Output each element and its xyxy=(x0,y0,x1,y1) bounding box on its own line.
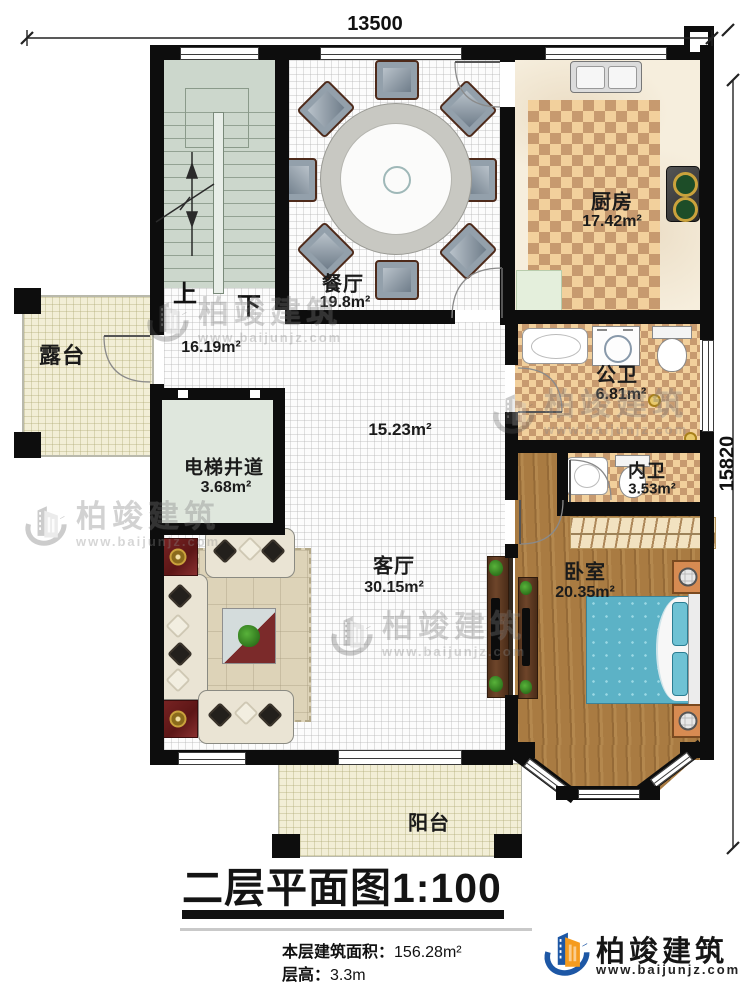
wardrobe xyxy=(570,517,716,549)
label-living-area: 30.15m² xyxy=(364,579,424,597)
label-terrace-name: 露台 xyxy=(39,338,85,370)
bay-wall-bottom xyxy=(556,786,660,800)
dimension-right: 15820 xyxy=(717,435,740,493)
end-table xyxy=(158,700,198,738)
plant xyxy=(489,676,503,692)
plant xyxy=(520,581,532,595)
label-elevator-area: 3.68m² xyxy=(201,479,252,497)
kitchen-stove xyxy=(666,166,700,222)
window-public-bath xyxy=(702,340,714,432)
floor-area-value: 156.28m² xyxy=(394,944,462,961)
brand-website: www.baijunjz.com xyxy=(596,962,740,977)
label-hall-area: 15.23m² xyxy=(368,420,431,440)
floor-height-value: 3.3m xyxy=(330,967,366,984)
sofa-bottom xyxy=(198,690,294,744)
wall-right-lower xyxy=(700,430,714,760)
pillow xyxy=(672,602,688,646)
window-living xyxy=(178,752,246,765)
label-elevator-name: 电梯井道 xyxy=(184,453,264,480)
label-balcony-name: 阳台 xyxy=(408,807,450,836)
wall-cabinet-line xyxy=(509,558,513,695)
dining-table-center xyxy=(383,166,411,194)
wall-hall-bath-b xyxy=(505,412,518,500)
wall-balcony-top-right xyxy=(458,750,513,765)
label-living-name: 客厅 xyxy=(373,550,415,579)
tv-living xyxy=(491,598,500,660)
terrace-floor xyxy=(22,295,154,457)
bath-sink xyxy=(522,328,588,364)
floor-plan-canvas: 13500 15820 餐厅 19.8m² 厨房 17.42m² 露台 上 下 … xyxy=(0,0,750,994)
window-stairwell xyxy=(180,47,259,60)
coffee-table xyxy=(222,608,276,664)
floor-height-row: 层高：3.3m xyxy=(282,961,366,985)
label-stairs-up: 上 xyxy=(173,274,197,309)
wall-hall-top-left xyxy=(285,310,455,324)
label-bedroom-area: 20.35m² xyxy=(555,584,615,602)
floor-area-row: 本层建筑面积：156.28m² xyxy=(282,938,462,962)
elevator-wall-top xyxy=(150,388,285,400)
elevator-door-mark xyxy=(178,390,188,398)
plant xyxy=(520,680,532,694)
label-ensuite-name: 内卫 xyxy=(628,457,666,483)
floor-height-label: 层高： xyxy=(282,967,330,984)
wall-ensuite-left xyxy=(557,453,568,502)
ensuite-sink xyxy=(566,457,608,495)
tv-bedroom xyxy=(522,608,530,666)
wall-stair-dining xyxy=(275,45,289,310)
kitchen-sink xyxy=(570,61,642,93)
balcony-sliding-door xyxy=(338,750,462,765)
elevator-wall-left xyxy=(150,388,162,535)
label-public-bath-area: 6.81m² xyxy=(596,386,647,404)
window-kitchen xyxy=(545,47,667,60)
elevator-door-mark xyxy=(250,390,260,398)
floor-area-label: 本层建筑面积： xyxy=(282,944,394,961)
window-dining xyxy=(320,47,462,60)
label-kitchen-name: 厨房 xyxy=(591,186,633,215)
wall-dining-kitchen-a xyxy=(500,45,515,62)
wall-right-upper xyxy=(700,45,714,340)
wall-bath-divider xyxy=(515,440,714,453)
sofa-top xyxy=(205,528,295,578)
wall-left-upper xyxy=(150,45,164,335)
wall-hall-bedroom-a xyxy=(505,544,518,558)
elevator-wall-right xyxy=(273,388,285,535)
plant xyxy=(489,560,503,576)
pillow xyxy=(672,652,688,696)
title-underline-thick xyxy=(182,910,504,919)
end-table xyxy=(158,538,198,576)
wall-dining-kitchen-b xyxy=(500,107,515,325)
label-bedroom-name: 卧室 xyxy=(564,556,606,585)
plan-title-scale: 1:100 xyxy=(392,865,502,911)
balcony-floor xyxy=(278,763,522,857)
wall-ensuite-bottom xyxy=(557,502,714,516)
terrace-pillar xyxy=(14,432,41,458)
plan-title: 二层平面图1:100 xyxy=(182,854,502,914)
label-ensuite-area: 3.53m² xyxy=(628,481,676,498)
label-dining-area: 19.8m² xyxy=(320,294,371,312)
title-underline-thin xyxy=(180,928,532,931)
wall-hall-top-right xyxy=(502,310,714,324)
plan-title-text: 二层平面图 xyxy=(182,865,392,911)
label-kitchen-area: 17.42m² xyxy=(582,213,642,231)
label-stairs-down: 下 xyxy=(237,286,261,321)
label-stairhall-area: 16.19m² xyxy=(181,339,241,357)
elevator-wall-bottom xyxy=(150,523,285,535)
dimension-top: 13500 xyxy=(332,13,418,36)
label-public-bath-name: 公卫 xyxy=(596,359,638,388)
stair-divider xyxy=(213,112,224,294)
label-dining-name: 餐厅 xyxy=(322,268,364,297)
floor-drain xyxy=(648,394,661,407)
toilet xyxy=(650,326,692,372)
brand-logo-icon xyxy=(543,926,591,983)
terrace-pillar xyxy=(14,288,41,314)
